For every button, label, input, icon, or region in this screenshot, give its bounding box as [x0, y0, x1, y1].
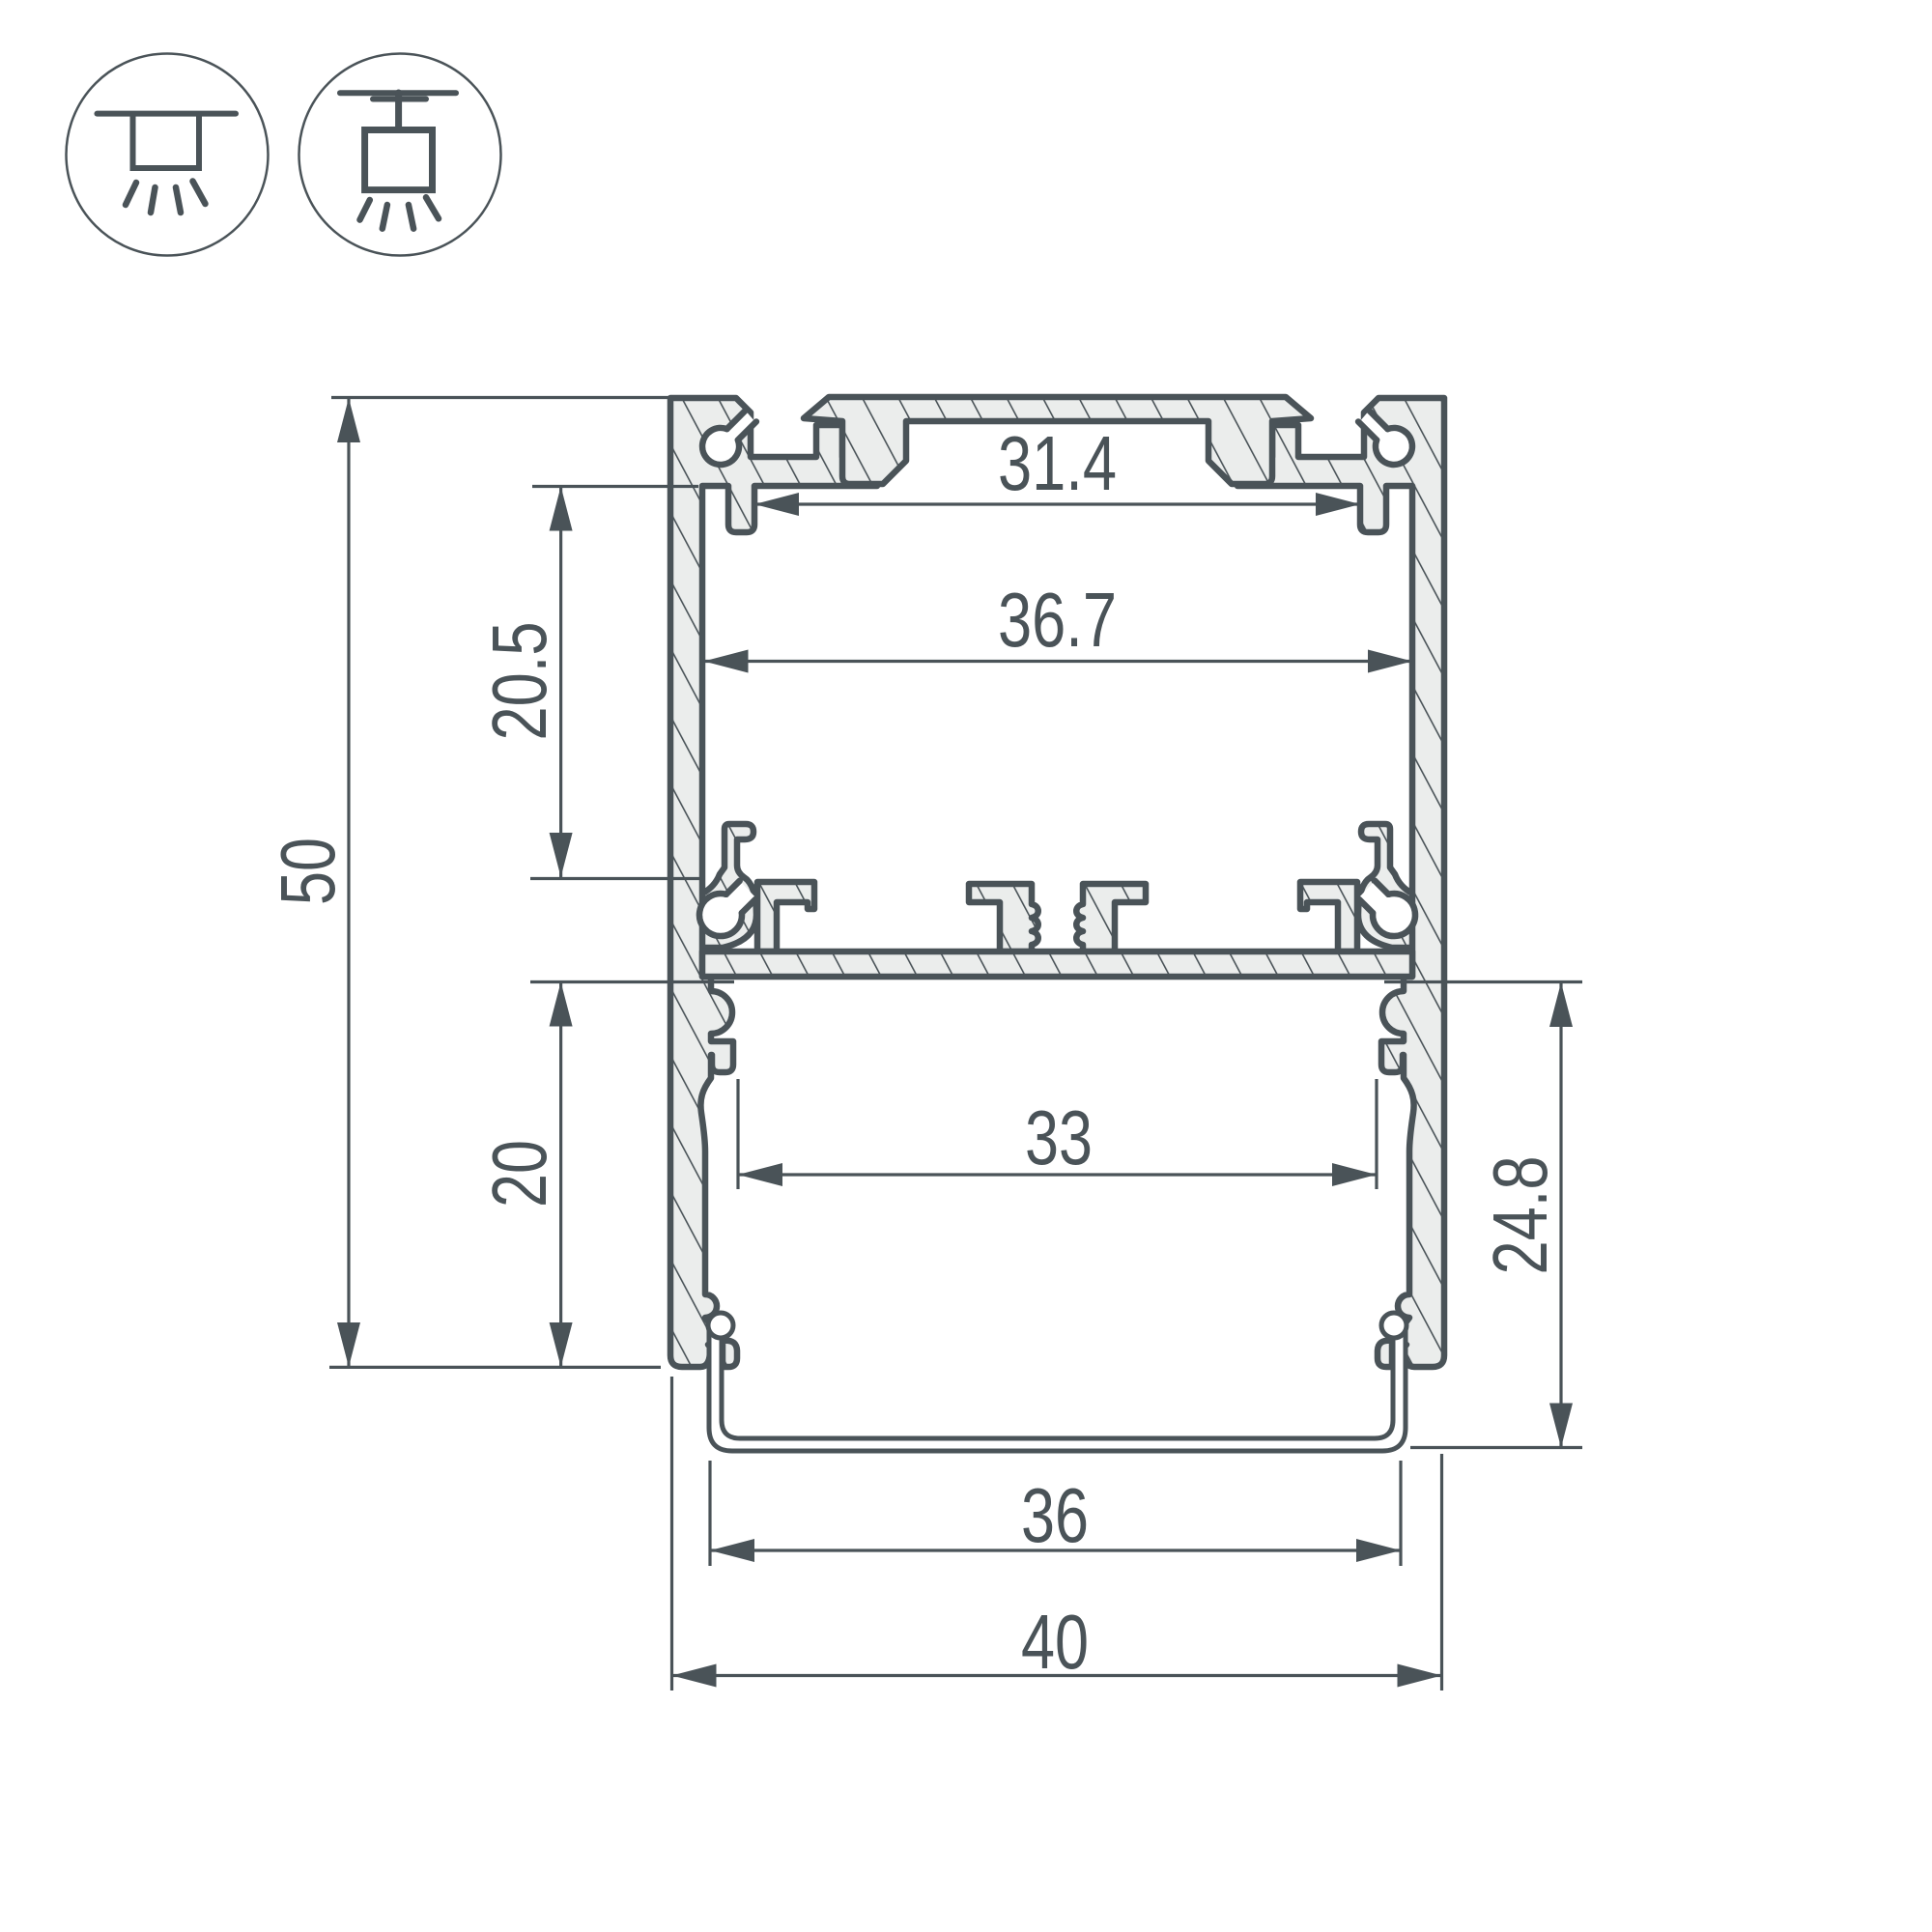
- svg-text:31.4: 31.4: [998, 420, 1117, 506]
- svg-text:50: 50: [265, 838, 351, 905]
- svg-text:33: 33: [1025, 1094, 1093, 1180]
- svg-text:20.5: 20.5: [476, 622, 562, 741]
- svg-text:20: 20: [476, 1140, 562, 1207]
- svg-text:36: 36: [1021, 1472, 1089, 1558]
- svg-text:24.8: 24.8: [1477, 1156, 1563, 1275]
- svg-text:36.7: 36.7: [998, 577, 1117, 663]
- svg-text:40: 40: [1021, 1599, 1089, 1685]
